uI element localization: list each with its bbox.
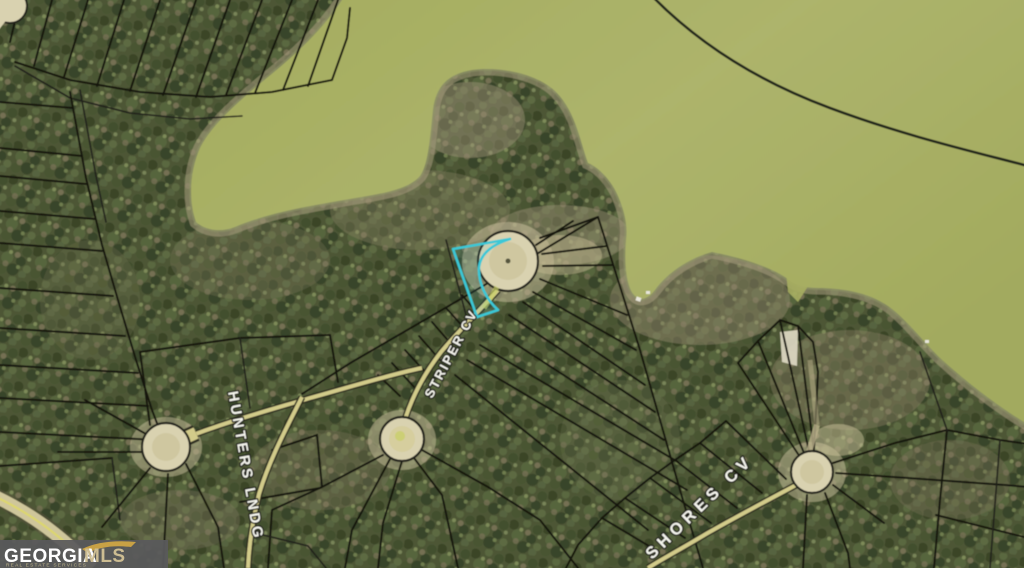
aerial-map-image[interactable]: STRIPER CV HUNTERS LNDG SHORES CV GEORGI… [0, 0, 1024, 568]
watermark-georgia-mls: GEORGIA MLS REAL ESTATE SERVICES [0, 540, 168, 568]
basemap: STRIPER CV HUNTERS LNDG SHORES CV [0, 0, 1024, 568]
listing-map-viewport[interactable]: STRIPER CV HUNTERS LNDG SHORES CV GEORGI… [0, 0, 1024, 568]
culdesac-shores-cv [791, 451, 833, 493]
watermark-tagline: REAL ESTATE SERVICES [6, 563, 87, 568]
watermark-brand-suffix: MLS [84, 546, 126, 567]
culdesac-striper-lower [380, 417, 424, 461]
